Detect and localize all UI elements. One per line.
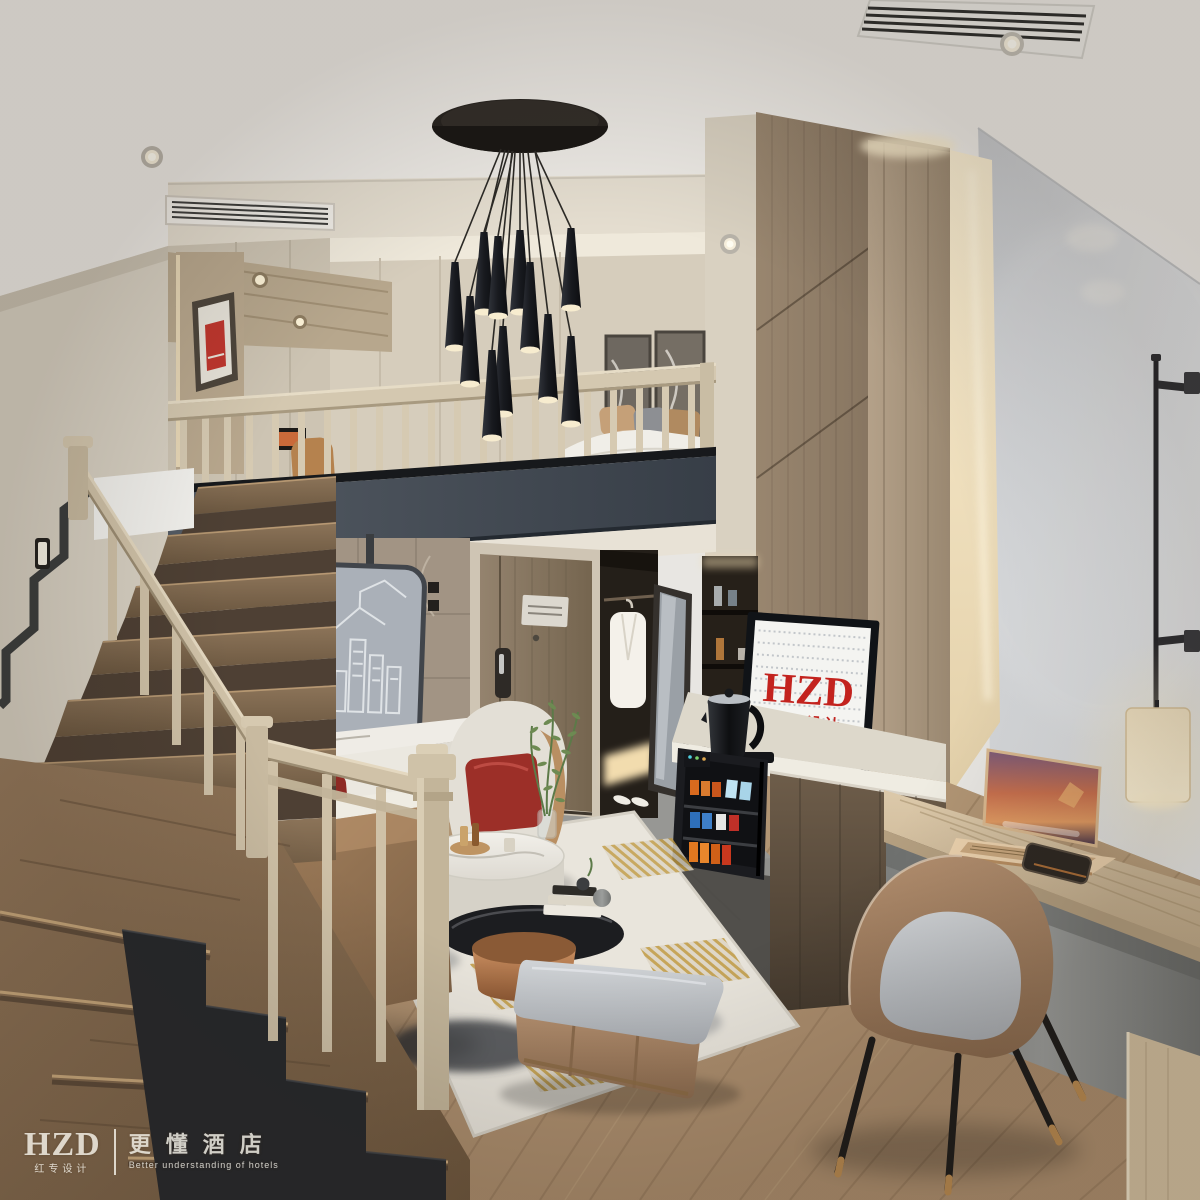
interior-render: HZD 红专设计: [0, 0, 1200, 1200]
watermark-logo-cn: 红专设计: [24, 1165, 101, 1175]
watermark-slogan-cn: 更懂酒店: [129, 1134, 279, 1156]
watermark-logo: HZD: [24, 1128, 101, 1162]
watermark: HZD 红专设计 更懂酒店 Better understanding of ho…: [24, 1128, 279, 1175]
watermark-divider: [114, 1129, 116, 1175]
watermark-slogan-en: Better understanding of hotels: [129, 1161, 279, 1170]
vignette: [0, 0, 1200, 1200]
